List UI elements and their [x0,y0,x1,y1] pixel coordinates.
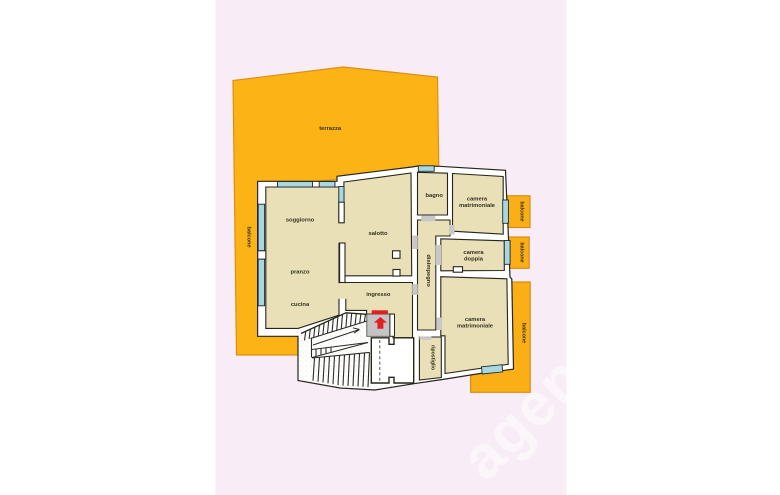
svg-text:doppia: doppia [464,257,484,263]
svg-text:salotto: salotto [368,231,387,237]
svg-text:cucina: cucina [291,302,310,308]
svg-text:disimpegno: disimpegno [425,254,431,287]
svg-text:camera: camera [463,250,484,256]
svg-text:camera: camera [467,197,488,203]
svg-text:terrazza: terrazza [319,126,342,132]
svg-text:bagno: bagno [426,193,444,199]
svg-text:balcone: balcone [521,323,527,343]
svg-text:camera: camera [465,317,486,323]
svg-text:balcone: balcone [245,226,251,247]
svg-text:ingresso: ingresso [366,292,391,298]
svg-text:balcone: balcone [519,201,525,221]
svg-text:pranzo: pranzo [290,270,309,276]
svg-text:soggiorno: soggiorno [286,218,315,224]
svg-text:balcone: balcone [519,242,525,262]
svg-text:matrimoniale: matrimoniale [459,203,496,209]
svg-text:ripostiglio: ripostiglio [430,345,436,370]
svg-text:matrimoniale: matrimoniale [457,324,494,330]
